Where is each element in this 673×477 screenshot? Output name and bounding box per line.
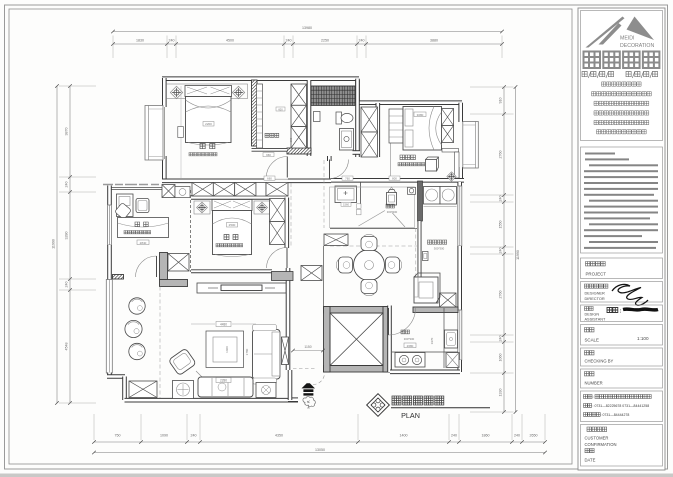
svg-text:DESIGNER: DESIGNER bbox=[585, 291, 606, 296]
svg-text:DECORATION: DECORATION bbox=[620, 43, 654, 49]
svg-text:1330: 1330 bbox=[499, 389, 503, 397]
svg-text:2840: 2840 bbox=[140, 241, 147, 245]
svg-text:2760: 2760 bbox=[499, 291, 503, 299]
svg-text:11990: 11990 bbox=[52, 239, 56, 249]
svg-text:240: 240 bbox=[514, 434, 520, 438]
svg-text:800: 800 bbox=[392, 177, 397, 181]
svg-text:: 0731—84444278: : 0731—84444278 bbox=[601, 413, 630, 417]
svg-text:3280: 3280 bbox=[65, 232, 69, 240]
svg-text:3880: 3880 bbox=[430, 39, 438, 43]
svg-text:1780: 1780 bbox=[245, 348, 249, 355]
svg-text:240: 240 bbox=[499, 336, 503, 342]
svg-text:11990: 11990 bbox=[516, 250, 520, 260]
svg-text:1400: 1400 bbox=[400, 434, 408, 438]
svg-text:3080: 3080 bbox=[417, 113, 424, 117]
svg-text:660: 660 bbox=[267, 177, 272, 181]
svg-text:1090: 1090 bbox=[160, 434, 168, 438]
svg-text:13980: 13980 bbox=[302, 26, 312, 30]
svg-text:PROJECT: PROJECT bbox=[586, 272, 607, 277]
svg-text:750: 750 bbox=[115, 434, 121, 438]
svg-text:2650: 2650 bbox=[530, 434, 538, 438]
svg-text:: 0731—82225678 0731—84441258: : 0731—82225678 0731—84441258 bbox=[593, 404, 650, 408]
svg-text:240: 240 bbox=[499, 196, 503, 202]
svg-text:600: 600 bbox=[289, 137, 293, 142]
svg-text:240: 240 bbox=[451, 434, 457, 438]
svg-text:1860: 1860 bbox=[482, 434, 490, 438]
svg-text:CHECKING BY: CHECKING BY bbox=[585, 359, 614, 364]
svg-text:3870: 3870 bbox=[65, 128, 69, 136]
svg-text:1550: 1550 bbox=[499, 221, 503, 229]
svg-text:NUMBER: NUMBER bbox=[585, 381, 603, 386]
svg-text:300*300: 300*300 bbox=[387, 210, 398, 214]
svg-text:2760: 2760 bbox=[499, 151, 503, 159]
svg-text:760: 760 bbox=[345, 177, 350, 181]
svg-text:960: 960 bbox=[266, 153, 271, 157]
svg-text:300*300: 300*300 bbox=[434, 247, 445, 251]
svg-text:240: 240 bbox=[499, 248, 503, 254]
svg-text:2680: 2680 bbox=[407, 344, 414, 348]
svg-text:CUSTOMER: CUSTOMER bbox=[585, 436, 609, 441]
svg-text:4548: 4548 bbox=[65, 343, 69, 351]
svg-text:DATE: DATE bbox=[585, 458, 596, 463]
svg-text:DESIGN: DESIGN bbox=[585, 313, 600, 317]
svg-text::: : bbox=[593, 394, 594, 399]
svg-text:240: 240 bbox=[65, 182, 69, 188]
svg-text:240: 240 bbox=[359, 39, 365, 43]
svg-text:1150: 1150 bbox=[304, 345, 311, 349]
svg-text:1830: 1830 bbox=[136, 39, 144, 43]
svg-text:4350: 4350 bbox=[275, 434, 283, 438]
svg-text:2280: 2280 bbox=[220, 379, 227, 383]
svg-text:240: 240 bbox=[191, 434, 197, 438]
svg-text:DIRECTOR: DIRECTOR bbox=[585, 296, 605, 301]
svg-text:PLAN: PLAN bbox=[401, 411, 420, 420]
svg-text:13050: 13050 bbox=[315, 448, 325, 452]
svg-text:CONFIRMATION: CONFIRMATION bbox=[585, 442, 617, 447]
svg-text:1970: 1970 bbox=[430, 337, 434, 344]
svg-text:2200: 2200 bbox=[205, 122, 212, 126]
svg-text:240: 240 bbox=[65, 282, 69, 288]
svg-text:1400: 1400 bbox=[225, 346, 229, 353]
svg-text:300*300: 300*300 bbox=[404, 337, 415, 341]
svg-text:MEIDI: MEIDI bbox=[620, 36, 634, 42]
svg-text:4480: 4480 bbox=[220, 323, 227, 327]
svg-text:910: 910 bbox=[499, 98, 503, 104]
svg-text:240: 240 bbox=[286, 39, 292, 43]
svg-text:240: 240 bbox=[169, 39, 175, 43]
svg-text:600: 600 bbox=[278, 107, 283, 111]
svg-text:ASSISTANT: ASSISTANT bbox=[585, 318, 606, 322]
svg-text:2500: 2500 bbox=[229, 223, 236, 227]
svg-text:1:100: 1:100 bbox=[637, 336, 649, 341]
svg-text:SCALE: SCALE bbox=[585, 338, 599, 343]
svg-text:4500: 4500 bbox=[226, 39, 234, 43]
svg-text:1560: 1560 bbox=[343, 203, 349, 207]
svg-text:2250: 2250 bbox=[321, 39, 329, 43]
svg-text:1060: 1060 bbox=[499, 354, 503, 362]
